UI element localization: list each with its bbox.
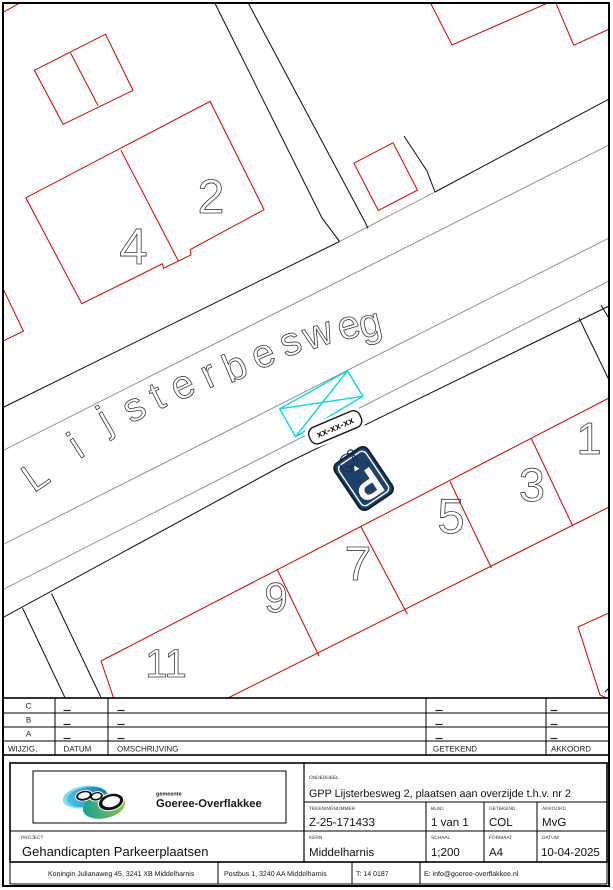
svg-text:T: 14 0187: T: 14 0187 xyxy=(356,871,389,878)
svg-text:C: C xyxy=(26,702,32,711)
svg-text:10-04-2025: 10-04-2025 xyxy=(541,847,600,859)
svg-text:BLAD: BLAD xyxy=(431,806,444,812)
svg-text:DATUM: DATUM xyxy=(64,745,92,754)
svg-text:11: 11 xyxy=(145,642,187,686)
svg-text:1: 1 xyxy=(576,413,601,464)
svg-text:Z-25-171433: Z-25-171433 xyxy=(309,817,375,829)
svg-text:DATUM: DATUM xyxy=(542,835,559,841)
svg-text:5: 5 xyxy=(437,490,464,544)
svg-text:4: 4 xyxy=(119,218,147,275)
svg-text:COL: COL xyxy=(489,817,513,829)
svg-text:Gehandicapten Parkeerplaatsen: Gehandicapten Parkeerplaatsen xyxy=(22,844,208,859)
svg-text:gemeente: gemeente xyxy=(156,792,182,798)
svg-text:Koningin Julianaweg 45, 3241 X: Koningin Julianaweg 45, 3241 XB Middelha… xyxy=(48,870,195,878)
svg-text:GETEKEND: GETEKEND xyxy=(433,745,477,754)
svg-text:7: 7 xyxy=(345,538,372,591)
svg-text:1;200: 1;200 xyxy=(431,847,460,859)
svg-text:GETEKEND: GETEKEND xyxy=(489,806,516,812)
svg-text:E: info@goeree-overflakkee.nl: E: info@goeree-overflakkee.nl xyxy=(424,870,519,878)
svg-text:FORMAAT: FORMAAT xyxy=(489,835,512,841)
svg-text:OMSCHRIJVING: OMSCHRIJVING xyxy=(117,745,178,754)
svg-text:SCHAAL: SCHAAL xyxy=(431,835,451,841)
svg-text:WIJZIG,: WIJZIG, xyxy=(8,745,37,754)
svg-text:2: 2 xyxy=(198,171,225,224)
svg-text:KERN: KERN xyxy=(309,835,323,841)
svg-text:1 van 1: 1 van 1 xyxy=(431,817,469,829)
svg-text:Postbus 1, 3240 AA Middelharni: Postbus 1, 3240 AA Middelharnis xyxy=(224,870,327,878)
svg-text:MvG: MvG xyxy=(542,817,566,829)
svg-text:Middelharnis: Middelharnis xyxy=(309,847,374,859)
svg-text:A4: A4 xyxy=(489,847,504,859)
svg-text:AKKOORD: AKKOORD xyxy=(551,745,591,754)
svg-text:ONDERDEEL: ONDERDEEL xyxy=(309,775,339,781)
svg-text:3: 3 xyxy=(519,458,545,511)
svg-text:A: A xyxy=(26,730,32,739)
svg-text:PROJECT: PROJECT xyxy=(21,835,43,841)
svg-text:B: B xyxy=(26,716,31,725)
svg-text:Goeree-Overflakkee: Goeree-Overflakkee xyxy=(156,798,262,810)
svg-text:TEKENINGNUMMER: TEKENINGNUMMER xyxy=(309,806,356,812)
svg-text:9: 9 xyxy=(264,574,287,621)
svg-text:GPP Lijsterbesweg 2, plaatsen: GPP Lijsterbesweg 2, plaatsen aan overzi… xyxy=(309,788,571,800)
svg-text:AKKOORD: AKKOORD xyxy=(542,806,567,812)
